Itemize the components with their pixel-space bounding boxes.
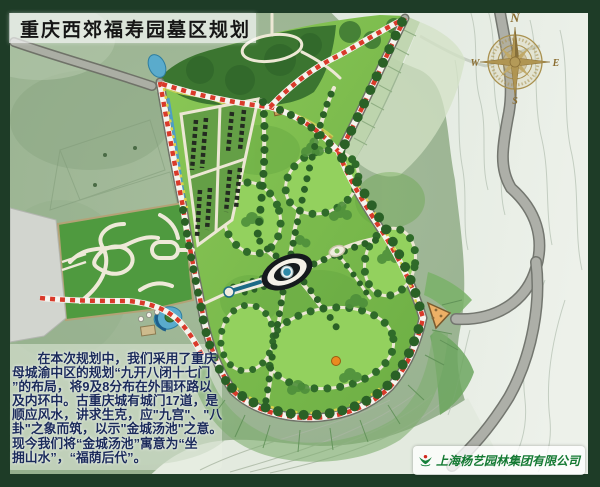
compass-rose-icon: N S W E xyxy=(466,8,564,106)
planning-description: 在本次规划中，我们采用了重庆 母城渝中区的规划“九开八闭十七门 ”的布局，将9及… xyxy=(12,352,222,465)
map-title-band: 重庆西郊福寿园墓区规划 xyxy=(9,13,256,43)
compass-north-label: N xyxy=(509,10,520,25)
company-logo: 上海杨艺园林集团有限公司 xyxy=(413,446,585,475)
map-title: 重庆西郊福寿园墓区规划 xyxy=(20,15,251,42)
compass-south-label: S xyxy=(512,96,518,106)
compass-east-label: E xyxy=(552,58,560,69)
description-line-7: 现今我们将“金城汤池”寓意为“坐 xyxy=(12,437,222,451)
company-name: 上海杨艺园林集团有限公司 xyxy=(436,452,580,469)
description-line-6: 卦"之象而筑，以示"金城汤池"之意。 xyxy=(12,422,222,436)
planning-map-page: 重庆西郊福寿园墓区规划 N S xyxy=(0,0,600,487)
company-logo-icon xyxy=(418,449,433,473)
description-line-8: 拥山水”，“福荫后代”。 xyxy=(12,451,222,465)
description-line-1: 在本次规划中，我们采用了重庆 xyxy=(12,352,222,366)
compass-west-label: W xyxy=(471,58,481,69)
